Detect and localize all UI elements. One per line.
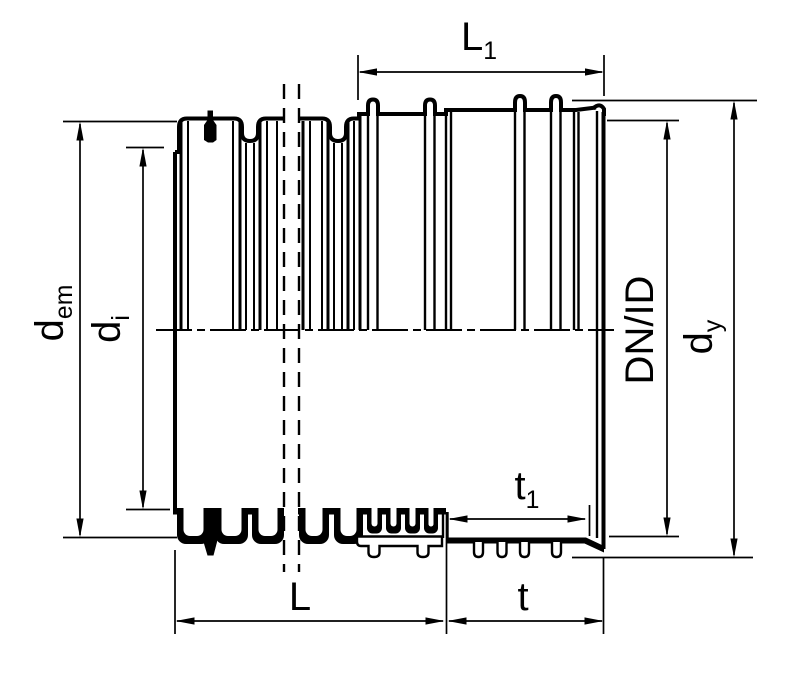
pipe-drawing-canvas xyxy=(0,0,791,686)
socket-wall xyxy=(446,538,604,558)
label-dem-base: d xyxy=(28,319,72,341)
label-L1-base: L xyxy=(461,15,483,59)
label-dy-sub: y xyxy=(700,320,727,332)
label-di: di xyxy=(87,315,127,343)
label-dn-id-base: DN/ID xyxy=(618,276,662,385)
marking-wedge-bottom xyxy=(204,508,218,556)
label-L1-sub: 1 xyxy=(483,38,497,65)
pipe-technical-drawing: L1 dem di DN/ID dy t1 L t xyxy=(0,0,791,686)
label-di-sub: i xyxy=(108,315,135,321)
label-dy-base: d xyxy=(677,332,721,354)
label-di-base: d xyxy=(85,321,129,343)
label-dem-sub: em xyxy=(51,285,78,319)
label-t1: t1 xyxy=(515,466,540,506)
marking-wedge-top xyxy=(204,111,217,143)
label-t: t xyxy=(517,577,528,617)
break-lines xyxy=(284,84,299,572)
label-L1: L1 xyxy=(461,17,497,57)
label-dy: dy xyxy=(679,320,719,355)
label-t1-base: t xyxy=(515,464,526,508)
label-L-base: L xyxy=(289,575,311,619)
dim-L1 xyxy=(358,55,604,100)
label-t-base: t xyxy=(517,575,528,619)
label-dn-id: DN/ID xyxy=(620,276,660,385)
label-dem: dem xyxy=(30,285,70,342)
label-L: L xyxy=(289,577,311,617)
dim-t1 xyxy=(449,505,590,536)
label-t1-sub: 1 xyxy=(526,487,540,514)
dim-di xyxy=(126,148,170,510)
